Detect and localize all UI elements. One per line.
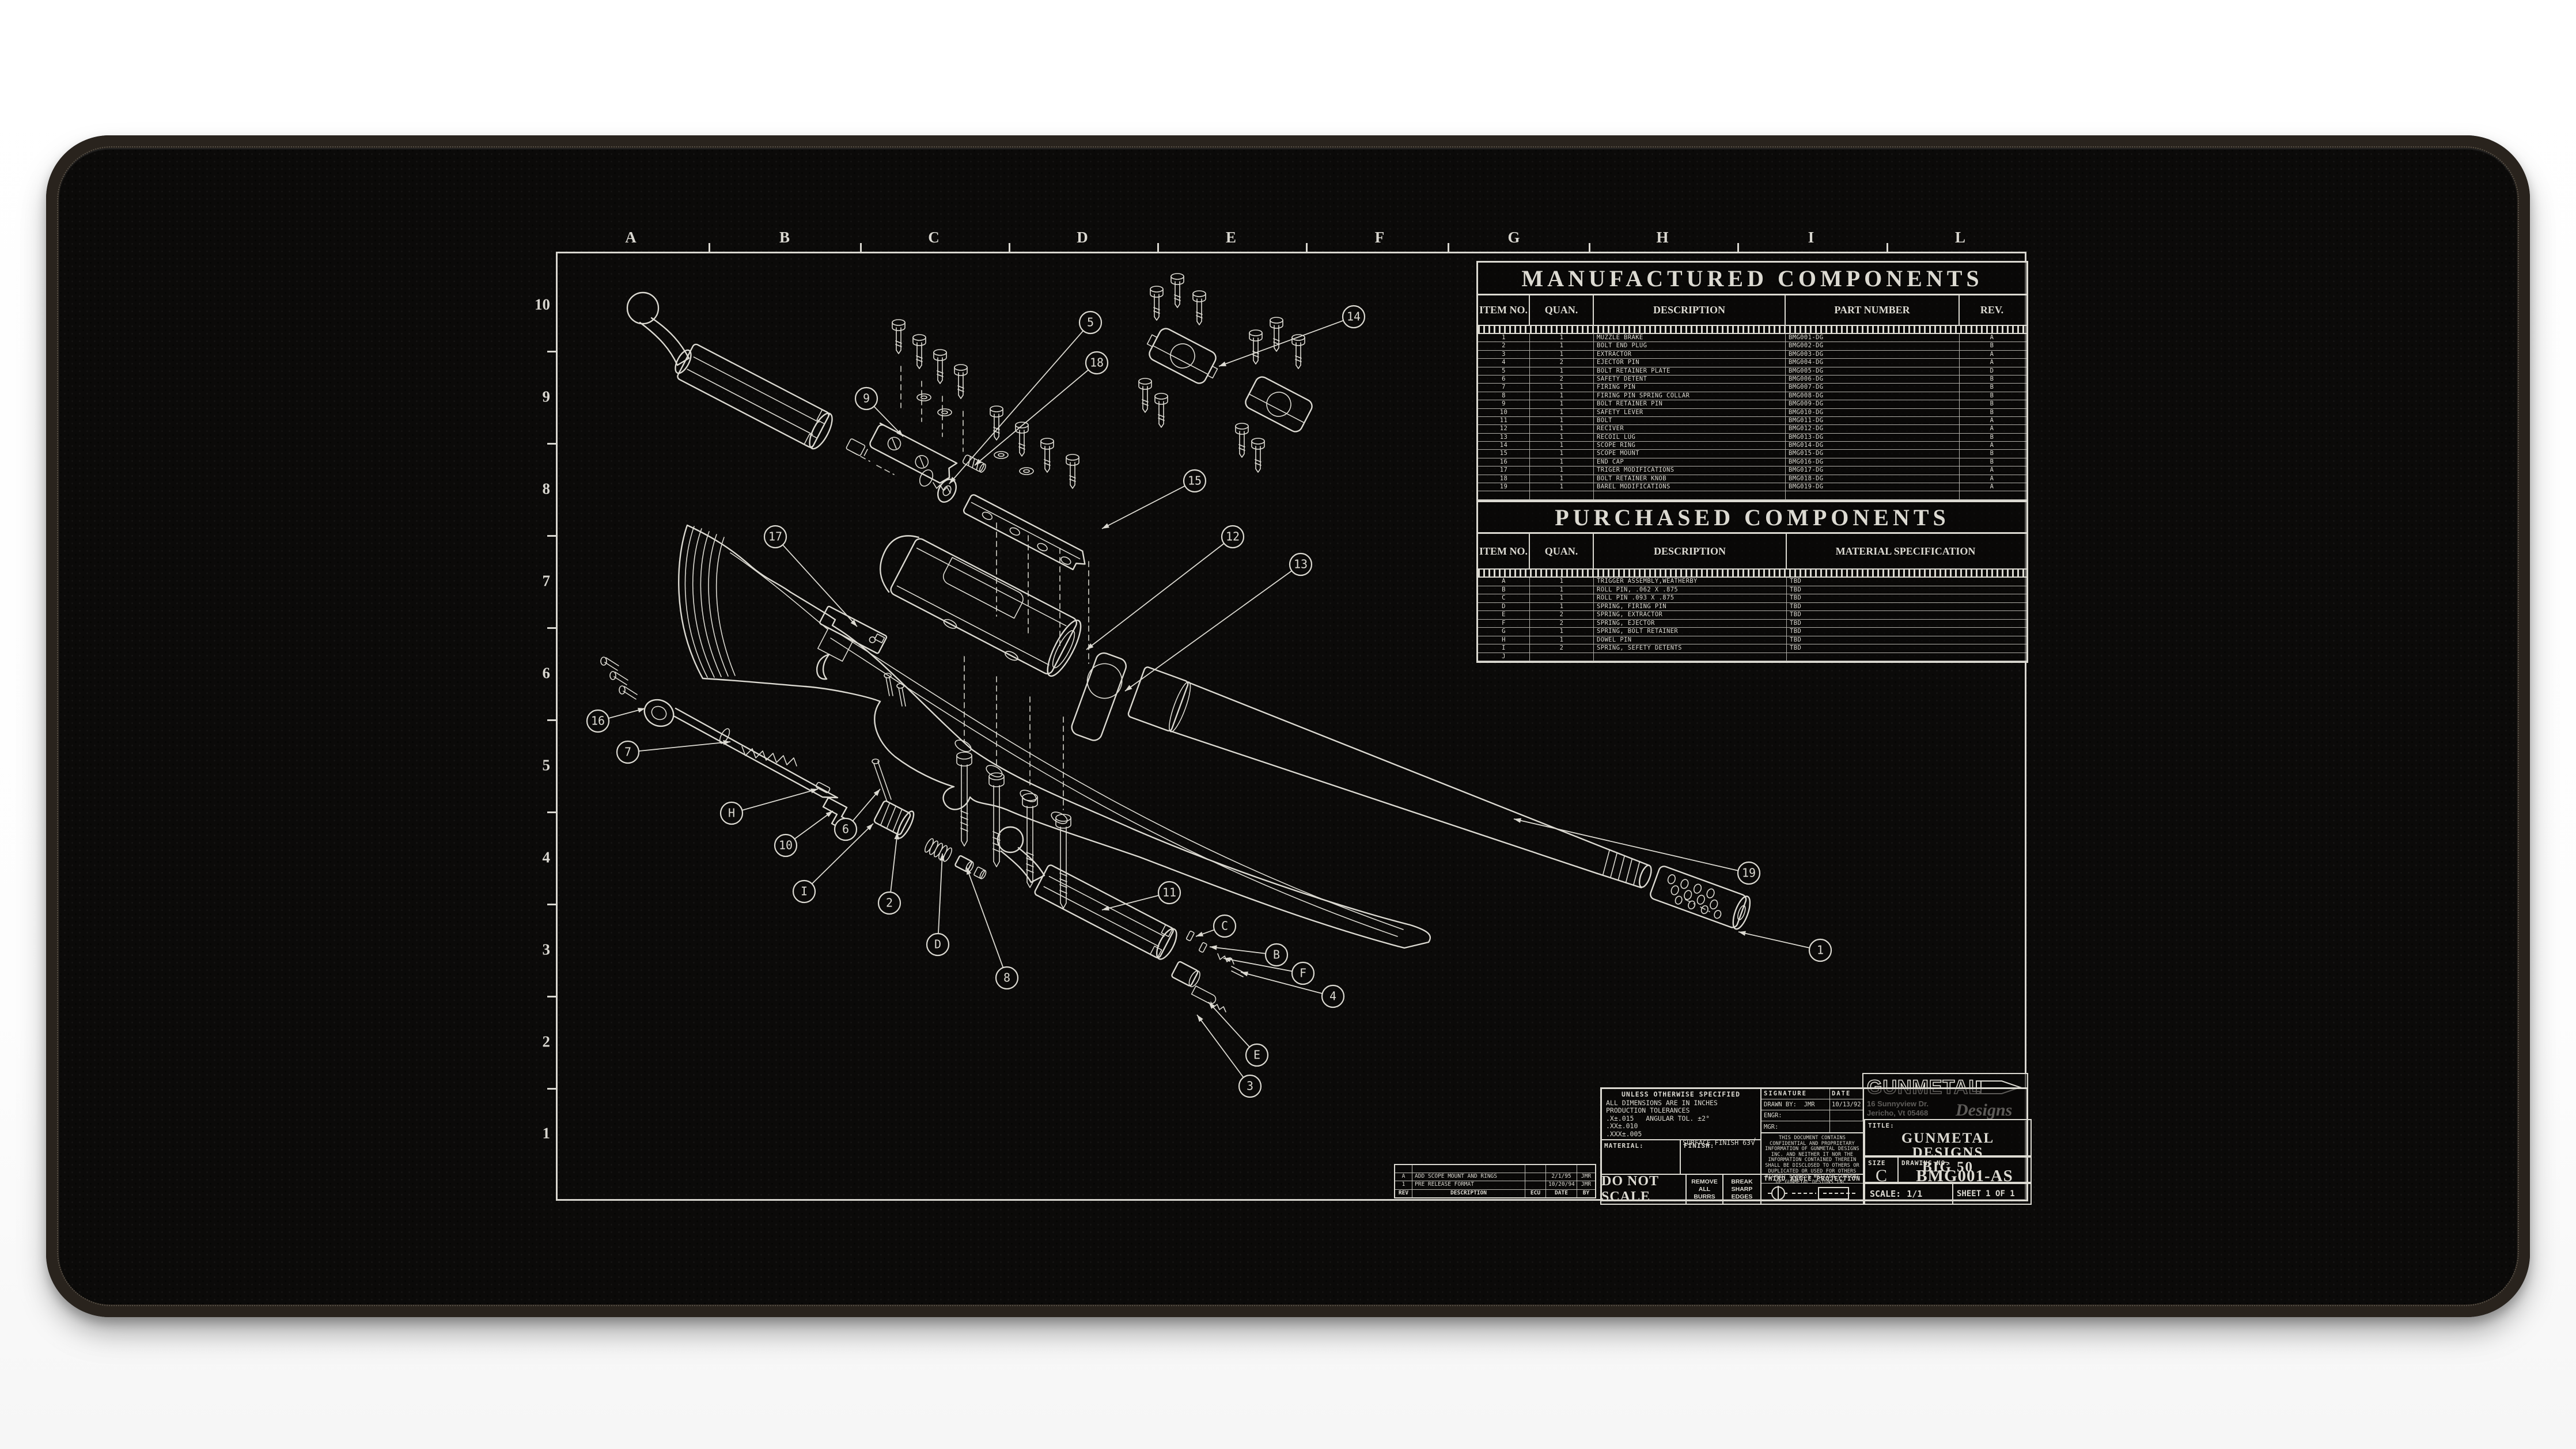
svg-text:15: 15 xyxy=(1188,474,1202,488)
size-cell: SIZE C xyxy=(1864,1156,1899,1183)
cell-by: JMR xyxy=(1577,1173,1595,1181)
svg-text:D: D xyxy=(934,938,941,951)
grid-tick xyxy=(1448,243,1449,252)
table-row: 18 1 BOLT RETAINER KNOB BMG018-DG A xyxy=(1478,475,2026,483)
grid-tick xyxy=(547,351,556,352)
grid-tick xyxy=(1589,243,1590,252)
purchased-components-table: PURCHASED COMPONENTS ITEM NO. QUAN. DESC… xyxy=(1476,500,2028,663)
table-row: G 1 SPRING, BOLT RETAINER TBD xyxy=(1478,628,2026,636)
grid-tick xyxy=(547,904,556,905)
cell-item: 9 xyxy=(1478,400,1530,408)
drawn-by-row: DRAWN BY: JMR 10/13/92 xyxy=(1761,1099,1863,1110)
material-label: MATERIAL: xyxy=(1601,1140,1680,1151)
cell-rev: A xyxy=(1395,1173,1412,1181)
table-row: 2 1 BOLT END PLUG BMG002-DG B xyxy=(1478,342,2026,350)
cell-rev: A xyxy=(1960,466,2024,474)
cell-rev: A xyxy=(1960,351,2024,358)
grid-tick xyxy=(1157,243,1159,252)
table-row: 6 2 SAFETY DETENT BMG006-DG B xyxy=(1478,375,2026,384)
callout-H: H xyxy=(721,788,818,824)
cell-quan: 2 xyxy=(1530,620,1594,628)
cell-rev: A xyxy=(1960,417,2024,424)
cell-material-spec: TBD xyxy=(1787,578,2024,586)
callout-10: 10 xyxy=(775,811,833,856)
cell-rev: B xyxy=(1960,434,2024,441)
cell-quan: 1 xyxy=(1530,466,1594,474)
photo-scene: ABCDEFGHIL 10987654321 xyxy=(0,0,2576,1449)
grid-row-label: 6 xyxy=(543,665,551,682)
cell-quan: 1 xyxy=(1530,636,1594,644)
cell-item: D xyxy=(1478,603,1530,611)
callout-8: 8 xyxy=(967,867,1018,989)
callout-9: 9 xyxy=(855,388,903,437)
confidentiality-note: THIS DOCUMENT CONTAINS CONFIDENTIAL AND … xyxy=(1760,1132,1864,1175)
title-block: UNLESS OTHERWISE SPECIFIED ALL DIMENSION… xyxy=(1600,1087,2028,1201)
callout-16: 16 xyxy=(587,708,645,732)
cell-quan: 1 xyxy=(1530,578,1594,586)
drawing-border: 51891415121317167H10I62D811CBF4E3191 MAN… xyxy=(556,252,2026,1201)
cell-part-number: BMG013-DG xyxy=(1786,434,1960,441)
remove-burrs-cell: REMOVE ALL BURRS xyxy=(1685,1174,1723,1205)
svg-text:7: 7 xyxy=(624,745,631,759)
cell-quan: 1 xyxy=(1530,475,1594,483)
table-row: 12 1 RECIVER BMG012-DG A xyxy=(1478,425,2026,433)
cell-part-number: BMG010-DG xyxy=(1786,409,1960,416)
table-row: B 1 ROLL PIN, .062 X .875 TBD xyxy=(1478,586,2026,595)
grid-column-label: C xyxy=(928,229,941,246)
svg-text:12: 12 xyxy=(1226,530,1240,544)
cell-description: BOLT RETAINER PIN xyxy=(1594,400,1786,408)
grid-ruler-left: 10987654321 xyxy=(532,252,556,1201)
cell-description: DOWEL PIN xyxy=(1594,636,1787,644)
material-cell: MATERIAL: xyxy=(1600,1139,1681,1175)
signature-header-row: SIGNATURE DATE xyxy=(1761,1088,1863,1099)
table-row xyxy=(1478,491,2026,499)
svg-text:E: E xyxy=(1253,1048,1260,1062)
cell-description: SPRING, SEFETY DETENTS xyxy=(1594,644,1787,653)
column-header: MATERIAL SPECIFICATION xyxy=(1787,534,2024,568)
cell-rev: D xyxy=(1960,367,2024,375)
callout-13: 13 xyxy=(1125,553,1312,691)
finish-label: FINISH: xyxy=(1681,1140,1760,1151)
grid-ruler-top: ABCDEFGHIL xyxy=(556,227,2026,252)
grid-tick xyxy=(547,535,556,537)
cell-part-number: BMG005-DG xyxy=(1786,367,1960,375)
cell-rev: B xyxy=(1960,342,2024,350)
cell-part-number: BMG007-DG xyxy=(1786,384,1960,391)
cell-item: 15 xyxy=(1478,450,1530,457)
cell-rev: B xyxy=(1960,392,2024,400)
callout-6: 6 xyxy=(835,789,880,840)
svg-text:6: 6 xyxy=(842,822,849,836)
cell-item: 1 xyxy=(1478,334,1530,342)
cell-rev: B xyxy=(1960,409,2024,416)
cell-description: EXTRACTOR xyxy=(1594,351,1786,358)
cell-quan: 1 xyxy=(1530,442,1594,449)
grid-tick xyxy=(1009,243,1010,252)
cell-rev: A xyxy=(1960,359,2024,366)
svg-text:18: 18 xyxy=(1090,356,1104,370)
cell-part-number: BMG015-DG xyxy=(1786,450,1960,457)
tolerance-line: ALL DIMENSIONS ARE IN INCHES xyxy=(1606,1099,1718,1107)
grid-tick xyxy=(860,243,862,252)
cell-date: 2/1/95 xyxy=(1546,1173,1577,1181)
mgr-row: MGR: xyxy=(1761,1121,1863,1132)
grid-column-label: A xyxy=(625,229,638,246)
grid-tick xyxy=(547,443,556,445)
cell-ecu xyxy=(1525,1181,1546,1189)
cell-rev: A xyxy=(1960,483,2024,491)
table-row: 19 1 BAREL MODIFICATIONS BMG019-DG A xyxy=(1478,483,2026,491)
manufactured-components-table: MANUFACTURED COMPONENTS ITEM NO. QUAN. D… xyxy=(1476,261,2028,502)
grid-column-label: E xyxy=(1226,229,1237,246)
cell-material-spec: TBD xyxy=(1787,611,2024,619)
cell-item: A xyxy=(1478,578,1530,586)
cell-item: 16 xyxy=(1478,458,1530,466)
cell-material-spec: TBD xyxy=(1787,636,2024,644)
revision-row: A ADD SCOPE MOUNT AND RINGS 2/1/95 JMR xyxy=(1395,1173,1595,1181)
revision-table: A ADD SCOPE MOUNT AND RINGS 2/1/95 JMR 1… xyxy=(1394,1164,1596,1198)
tolerance-line: ANGULAR TOL. ±2° xyxy=(1646,1114,1710,1122)
grid-tick xyxy=(547,1088,556,1090)
cell-description: SCOPE MOUNT xyxy=(1594,450,1786,457)
cell-item: 4 xyxy=(1478,359,1530,366)
tolerance-line: .XXX±.005 xyxy=(1606,1130,1642,1138)
cell-item: 12 xyxy=(1478,425,1530,433)
cell-item: 13 xyxy=(1478,434,1530,441)
cell-rev: B xyxy=(1960,450,2024,457)
cell-quan: 1 xyxy=(1530,367,1594,375)
table-row: 4 2 EJECTOR PIN BMG004-DG A xyxy=(1478,359,2026,367)
cell-rev: B xyxy=(1960,458,2024,466)
finish-cell: FINISH: xyxy=(1680,1139,1761,1175)
table-row: I 2 SPRING, SEFETY DETENTS TBD xyxy=(1478,644,2026,653)
table-row: 8 1 FIRING PIN SPRING COLLAR BMG008-DG B xyxy=(1478,392,2026,400)
cell-quan: 1 xyxy=(1530,628,1594,636)
tolerance-header: UNLESS OTHERWISE SPECIFIED xyxy=(1606,1091,1756,1099)
drawing-title-line1: GUNMETAL DESIGNS xyxy=(1865,1131,2031,1160)
cell-description xyxy=(1594,653,1787,661)
cell-rev: A xyxy=(1960,425,2024,433)
cell-part-number: BMG009-DG xyxy=(1786,400,1960,408)
table-row: 3 1 EXTRACTOR BMG003-DG A xyxy=(1478,351,2026,359)
grid-row-label: 5 xyxy=(543,757,551,775)
cell-quan: 2 xyxy=(1530,611,1594,619)
cell-item xyxy=(1478,491,1530,499)
cell-material-spec: TBD xyxy=(1787,628,2024,636)
manufactured-header-row: ITEM NO. QUAN. DESCRIPTION PART NUMBER R… xyxy=(1478,295,2026,326)
cell-part-number: BMG008-DG xyxy=(1786,392,1960,400)
grid-row-label: 1 xyxy=(543,1125,551,1143)
table-row: 1 1 MUZZLE BRAKE BMG001-DG A xyxy=(1478,334,2026,342)
cell-rev: A xyxy=(1960,475,2024,483)
table-row: 9 1 BOLT RETAINER PIN BMG009-DG B xyxy=(1478,400,2026,408)
grid-row-label: 3 xyxy=(543,941,551,959)
table-row: F 2 SPRING, EJECTOR TBD xyxy=(1478,620,2026,628)
cell-material-spec: TBD xyxy=(1787,586,2024,594)
cell-item: 11 xyxy=(1478,417,1530,424)
cell-part-number: BMG006-DG xyxy=(1786,375,1960,383)
callout-14: 14 xyxy=(1219,306,1365,366)
cell-quan: 1 xyxy=(1530,392,1594,400)
cell-description: ROLL PIN, .062 X .875 xyxy=(1594,586,1787,594)
cell-rev: B xyxy=(1960,384,2024,391)
cell-description: MUZZLE BRAKE xyxy=(1594,334,1786,342)
cell-description: BOLT RETAINER KNOB xyxy=(1594,475,1786,483)
cell-description: SPRING, EXTRACTOR xyxy=(1594,611,1787,619)
cell-rev: B xyxy=(1960,375,2024,383)
cell-item: 14 xyxy=(1478,442,1530,449)
cell-ecu xyxy=(1525,1173,1546,1181)
callout-7: 7 xyxy=(617,740,730,763)
cell-description: SCOPE RING xyxy=(1594,442,1786,449)
column-header: ITEM NO. xyxy=(1478,534,1530,568)
grid-row-label: 10 xyxy=(535,296,550,314)
table-row: 7 1 FIRING PIN BMG007-DG B xyxy=(1478,384,2026,392)
grid-row-label: 9 xyxy=(543,388,551,406)
cell-description: SPRING, EJECTOR xyxy=(1594,620,1787,628)
cell-item: 6 xyxy=(1478,375,1530,383)
cell-item: 7 xyxy=(1478,384,1530,391)
tolerance-line: .X±.015 xyxy=(1606,1114,1634,1122)
table-row: D 1 SPRING, FIRING PIN TBD xyxy=(1478,603,2026,612)
cell-description: BOLT END PLUG xyxy=(1594,342,1786,350)
cell-description: BOLT xyxy=(1594,417,1786,424)
cell-description: EJECTOR PIN xyxy=(1594,359,1786,366)
do-not-scale-cell: DO NOT SCALE xyxy=(1600,1174,1687,1205)
cell-date: 10/20/94 xyxy=(1546,1181,1577,1189)
cell-item: 2 xyxy=(1478,342,1530,350)
column-header: ITEM NO. xyxy=(1478,295,1530,325)
cell-part-number: BMG012-DG xyxy=(1786,425,1960,433)
table-row: H 1 DOWEL PIN TBD xyxy=(1478,636,2026,645)
cell-part-number: BMG003-DG xyxy=(1786,351,1960,358)
grid-tick xyxy=(1737,243,1739,252)
cell-rev: A xyxy=(1960,442,2024,449)
cell-item: 19 xyxy=(1478,483,1530,491)
break-edges-cell: BREAK SHARP EDGES xyxy=(1722,1174,1761,1205)
size-value: C xyxy=(1865,1169,1897,1184)
svg-text:2: 2 xyxy=(886,896,893,910)
cell-rev: B xyxy=(1960,400,2024,408)
callout-17: 17 xyxy=(764,526,857,627)
cell-item: G xyxy=(1478,628,1530,636)
grid-column-label: L xyxy=(1955,229,1967,246)
grid-column-label: F xyxy=(1375,229,1386,246)
grid-column-label: G xyxy=(1507,229,1521,246)
cell-description: TRIGGER ASSEMBLY,WEATHERBY xyxy=(1594,578,1787,586)
callout-C: C xyxy=(1196,915,1236,937)
grid-row-label: 4 xyxy=(543,849,551,867)
scale-label: SCALE: xyxy=(1870,1189,1901,1199)
svg-text:19: 19 xyxy=(1742,866,1756,880)
cell-rev xyxy=(1960,491,2024,499)
sheet-label: SHEET xyxy=(1957,1189,1981,1198)
table-row: 5 1 BOLT RETAINER PLATE BMG005-DG D xyxy=(1478,367,2026,375)
svg-text:8: 8 xyxy=(1003,971,1010,985)
grid-tick xyxy=(547,996,556,997)
grid-tick xyxy=(709,243,710,252)
cell-description: ADD SCOPE MOUNT AND RINGS xyxy=(1412,1173,1525,1181)
cell-item: B xyxy=(1478,586,1530,594)
grid-row-label: 8 xyxy=(543,480,551,498)
cell-quan: 1 xyxy=(1530,586,1594,594)
cell-item: 3 xyxy=(1478,351,1530,358)
cell-quan: 2 xyxy=(1530,644,1594,653)
cell-part-number: BMG002-DG xyxy=(1786,342,1960,350)
cell-quan: 1 xyxy=(1530,417,1594,424)
grid-row-label: 2 xyxy=(543,1033,551,1051)
third-angle-projection-icon xyxy=(1763,1184,1861,1203)
tolerance-line: PRODUCTION TOLERANCES xyxy=(1606,1106,1689,1114)
table-row: 10 1 SAFETY LEVER BMG010-DG B xyxy=(1478,409,2026,417)
callout-11: 11 xyxy=(1102,882,1180,911)
cell-description: END CAP xyxy=(1594,458,1786,466)
callout-1: 1 xyxy=(1738,931,1831,961)
table-row: A 1 TRIGGER ASSEMBLY,WEATHERBY TBD xyxy=(1478,578,2026,586)
drawing-no-value: BMG001-AS xyxy=(1899,1169,2031,1184)
cell-description: BOLT RETAINER PLATE xyxy=(1594,367,1786,375)
projection-cell: THIRD ANGLE PROJECTION xyxy=(1760,1174,1864,1205)
callout-15: 15 xyxy=(1102,470,1206,529)
svg-text:C: C xyxy=(1221,919,1228,933)
cell-quan: 1 xyxy=(1530,603,1594,611)
cell-quan: 1 xyxy=(1530,384,1594,391)
title-label: TITLE: xyxy=(1865,1120,2031,1131)
cell-quan: 1 xyxy=(1530,425,1594,433)
cell-item: E xyxy=(1478,611,1530,619)
cell-quan: 1 xyxy=(1530,342,1594,350)
cell-material-spec: TBD xyxy=(1787,620,2024,628)
svg-text:17: 17 xyxy=(768,530,782,544)
cell-part-number: BMG017-DG xyxy=(1786,466,1960,474)
cell-quan: 1 xyxy=(1530,400,1594,408)
cell-quan xyxy=(1530,653,1594,661)
revision-row: 1 PRE RELEASE FORMAT 10/20/94 JMR xyxy=(1395,1181,1595,1189)
cell-quan: 1 xyxy=(1530,434,1594,441)
cell-description: FIRING PIN xyxy=(1594,384,1786,391)
sheet-value: 1 OF 1 xyxy=(1986,1189,2015,1198)
svg-text:1: 1 xyxy=(1817,943,1824,957)
callout-2: 2 xyxy=(878,832,900,914)
cell-quan: 1 xyxy=(1530,450,1594,457)
grid-column-label: D xyxy=(1077,229,1089,246)
revision-empty-row xyxy=(1395,1165,1595,1173)
cell-item: C xyxy=(1478,594,1530,602)
column-header: DESCRIPTION xyxy=(1594,295,1786,325)
callout-18: 18 xyxy=(975,352,1108,465)
cell-description: RECOIL LUG xyxy=(1594,434,1786,441)
grid-column-label: B xyxy=(779,229,791,246)
cell-part-number: BMG019-DG xyxy=(1786,483,1960,491)
grid-column-label: I xyxy=(1808,229,1816,246)
cell-part-number: BMG001-DG xyxy=(1786,334,1960,342)
cell-item: 10 xyxy=(1478,409,1530,416)
svg-text:16: 16 xyxy=(591,714,605,728)
column-header: REV. xyxy=(1960,295,2024,325)
svg-text:F: F xyxy=(1300,966,1306,980)
table-row: 17 1 TRIGER MODIFICATIONS BMG017-DG A xyxy=(1478,466,2026,475)
projection-label: THIRD ANGLE PROJECTION xyxy=(1761,1175,1863,1184)
callout-12: 12 xyxy=(1086,526,1244,650)
cell-description: TRIGER MODIFICATIONS xyxy=(1594,466,1786,474)
sheet-cell: SHEET 1 OF 1 xyxy=(1952,1183,2032,1205)
cell-material-spec: TBD xyxy=(1787,603,2024,611)
cell-part-number: BMG014-DG xyxy=(1786,442,1960,449)
column-header: QUAN. xyxy=(1530,534,1594,568)
grid-tick xyxy=(547,719,556,721)
svg-text:11: 11 xyxy=(1162,886,1176,900)
scale-cell: SCALE: 1/1 xyxy=(1864,1183,1953,1205)
cell-description: SAFETY LEVER xyxy=(1594,409,1786,416)
svg-text:13: 13 xyxy=(1294,557,1308,571)
cell-rev: 1 xyxy=(1395,1181,1412,1189)
signature-block: SIGNATURE DATE DRAWN BY: JMR 10/13/92 EN… xyxy=(1760,1087,1864,1133)
cell-item: F xyxy=(1478,620,1530,628)
cell-description: SAFETY DETENT xyxy=(1594,375,1786,383)
title-cell: TITLE: GUNMETAL DESIGNS BIG 50 xyxy=(1864,1119,2032,1156)
cell-description: FIRING PIN SPRING COLLAR xyxy=(1594,392,1786,400)
cell-item: H xyxy=(1478,636,1530,644)
table-row: 13 1 RECOIL LUG BMG013-DG B xyxy=(1478,434,2026,442)
scale-value: 1/1 xyxy=(1907,1189,1922,1199)
table-row: E 2 SPRING, EXTRACTOR TBD xyxy=(1478,611,2026,620)
cell-description: BAREL MODIFICATIONS xyxy=(1594,483,1786,491)
manufactured-title: MANUFACTURED COMPONENTS xyxy=(1478,263,2026,295)
column-header: DESCRIPTION xyxy=(1594,534,1787,568)
svg-text:10: 10 xyxy=(779,839,793,852)
hatch-separator xyxy=(1478,570,2026,578)
column-header: PART NUMBER xyxy=(1786,295,1960,325)
cell-item: J xyxy=(1478,653,1530,661)
cell-description xyxy=(1594,491,1786,499)
svg-text:I: I xyxy=(801,885,808,898)
cell-quan: 1 xyxy=(1530,334,1594,342)
mousepad: ABCDEFGHIL 10987654321 xyxy=(46,135,2530,1317)
cell-material-spec: TBD xyxy=(1787,644,2024,653)
grid-tick xyxy=(1886,243,1888,252)
revision-header-row: REV DESCRIPTION ECU DATE BY xyxy=(1395,1190,1595,1198)
cell-item: 18 xyxy=(1478,475,1530,483)
cell-item: I xyxy=(1478,644,1530,653)
column-header: QUAN. xyxy=(1530,295,1594,325)
cell-description: RECIVER xyxy=(1594,425,1786,433)
table-row: 15 1 SCOPE MOUNT BMG015-DG B xyxy=(1478,450,2026,458)
table-row: 16 1 END CAP BMG016-DG B xyxy=(1478,458,2026,466)
cell-quan: 1 xyxy=(1530,483,1594,491)
purchased-header-row: ITEM NO. QUAN. DESCRIPTION MATERIAL SPEC… xyxy=(1478,534,2026,570)
cell-quan: 2 xyxy=(1530,375,1594,383)
cell-quan xyxy=(1530,491,1594,499)
grid-tick xyxy=(547,811,556,813)
cell-by: JMR xyxy=(1577,1181,1595,1189)
cell-part-number: BMG016-DG xyxy=(1786,458,1960,466)
svg-text:3: 3 xyxy=(1247,1079,1253,1093)
cell-quan: 1 xyxy=(1530,458,1594,466)
cell-part-number: BMG011-DG xyxy=(1786,417,1960,424)
cell-material-spec xyxy=(1787,653,2024,661)
tolerance-block: UNLESS OTHERWISE SPECIFIED ALL DIMENSION… xyxy=(1600,1087,1761,1140)
drawing-no-cell: DRAWING NO. BMG001-AS xyxy=(1897,1156,2032,1183)
cell-part-number: BMG018-DG xyxy=(1786,475,1960,483)
cell-rev: A xyxy=(1960,334,2024,342)
grid-row-label: 7 xyxy=(543,572,551,590)
cell-quan: 2 xyxy=(1530,359,1594,366)
cell-quan: 1 xyxy=(1530,351,1594,358)
cell-description: SPRING, BOLT RETAINER xyxy=(1594,628,1787,636)
cell-item: 5 xyxy=(1478,367,1530,375)
cell-item: 8 xyxy=(1478,392,1530,400)
